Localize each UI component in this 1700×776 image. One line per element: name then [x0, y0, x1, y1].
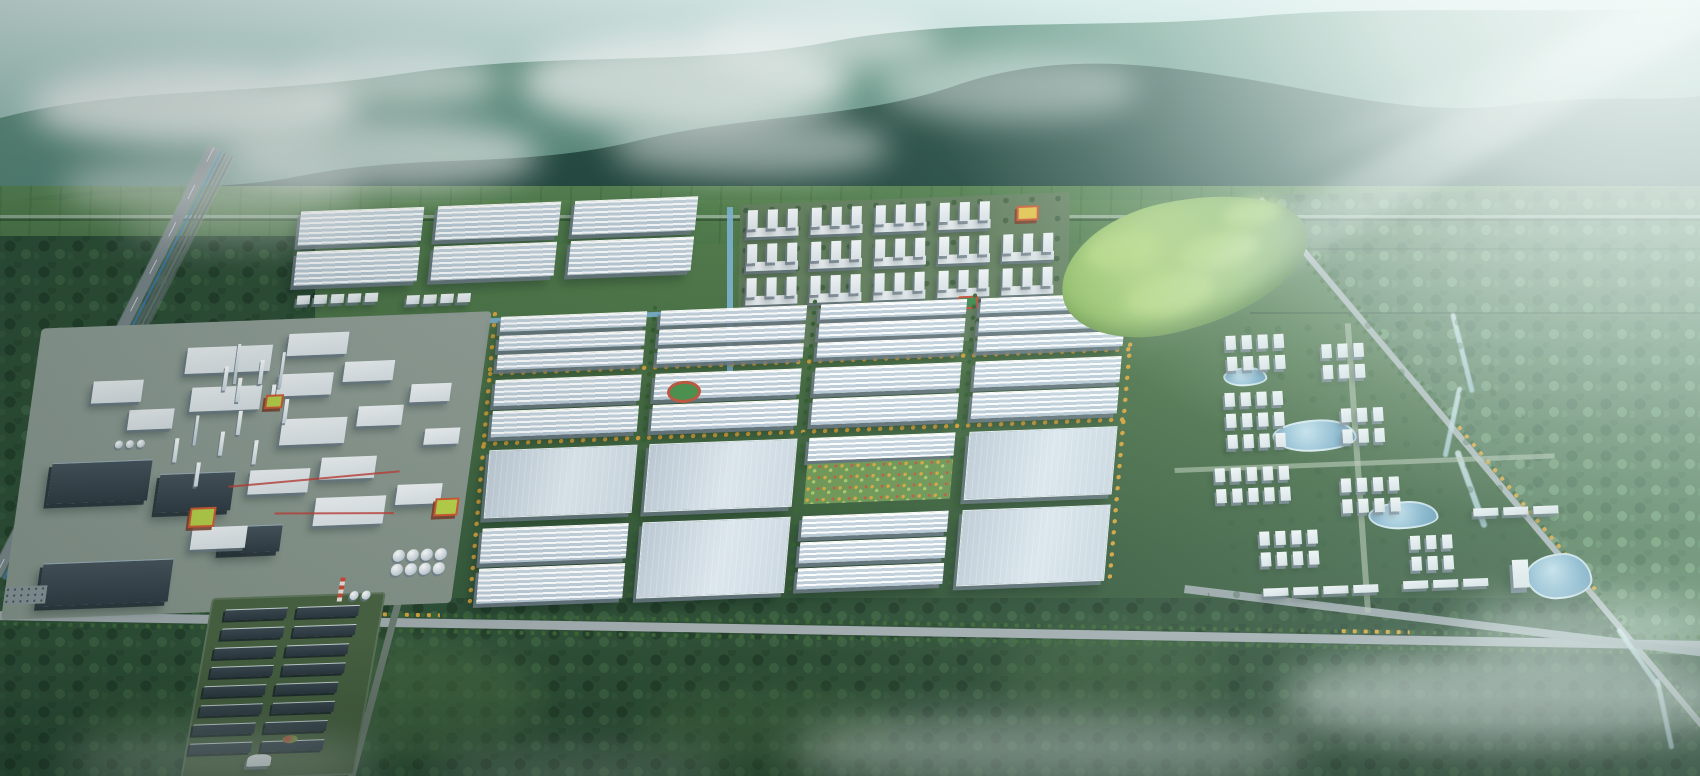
apartment-tower	[1241, 335, 1252, 349]
hedgerow-line	[1250, 312, 1700, 314]
storage-tank	[404, 563, 418, 576]
green-street	[946, 292, 979, 589]
dormitory-block	[746, 242, 798, 271]
central-garden	[804, 458, 953, 504]
small-workshop	[296, 295, 310, 305]
dormitory-wing	[787, 242, 797, 261]
dark-shed	[199, 703, 263, 716]
warehouse-hall	[811, 393, 959, 425]
pond	[1271, 418, 1357, 453]
dark-shed	[282, 662, 346, 675]
apartment-tower	[1279, 466, 1290, 480]
dark-roof-hall	[155, 471, 235, 513]
green-street	[626, 304, 659, 601]
sun-ray-small-icon	[1263, 0, 1700, 183]
mist-patch	[1460, 596, 1700, 660]
apartment-tower	[1411, 557, 1422, 571]
dormitory-wing	[1043, 233, 1053, 252]
warehouse-hall	[796, 563, 944, 590]
factory-hall	[572, 196, 699, 235]
dark-shed	[213, 646, 277, 659]
apartment-tower	[1342, 429, 1353, 443]
sky	[0, 0, 1700, 360]
dormitory-wing	[1002, 268, 1012, 287]
apartment-tower	[1243, 356, 1254, 370]
facility-grounds	[180, 592, 386, 776]
central-warehouse-grid	[18, 177, 1515, 654]
gingko-tree-row	[1340, 628, 1410, 636]
dormitory-block	[809, 274, 861, 303]
dormitory-slab	[1001, 285, 1053, 296]
apartment-tower	[1374, 428, 1385, 442]
apartment-tower	[1443, 555, 1454, 569]
apartment-tower	[1355, 364, 1366, 378]
white-process-building	[276, 372, 334, 396]
apartment-tower	[1242, 413, 1253, 427]
apartment-tower	[1291, 530, 1302, 544]
dormitory-wing	[766, 277, 776, 296]
tree-row	[1253, 200, 1700, 741]
rail-track	[6, 153, 226, 582]
orange-accent-building	[264, 394, 284, 409]
dormitory-wing	[940, 203, 950, 222]
white-tent-building	[246, 754, 272, 767]
forest-glade	[40, 420, 200, 550]
apartment-tower	[1293, 551, 1304, 565]
lowrise-slab	[1473, 508, 1499, 517]
apartment-tower	[1357, 478, 1368, 492]
dormitory-wing	[768, 209, 778, 228]
apartment-tower	[1226, 414, 1237, 428]
dormitory-wing	[850, 274, 860, 293]
factory-hall	[567, 236, 694, 275]
storage-tank	[432, 562, 446, 575]
northeast-avenue	[1254, 193, 1700, 740]
warehouse-hall	[971, 387, 1119, 419]
lowrise-slab	[1433, 579, 1459, 588]
apartment-tower	[1240, 392, 1251, 406]
lowrise-slab	[1263, 588, 1289, 597]
apartment-tower	[1216, 489, 1227, 503]
rolling-green-park	[1051, 175, 1320, 355]
dormitory-wing	[980, 201, 990, 220]
apartment-tower	[1339, 364, 1350, 378]
cloud-icon	[700, 10, 940, 70]
river-stream	[1655, 678, 1675, 749]
dormitory-wing	[914, 272, 924, 291]
green-roof	[266, 396, 281, 407]
apartment-tower	[1341, 408, 1352, 422]
southeast-road	[1184, 585, 1700, 658]
dormitory-wing	[916, 204, 926, 223]
dormitory-block	[1002, 233, 1054, 262]
dormitory-wing	[767, 243, 777, 262]
storage-tank	[434, 548, 448, 561]
hedgerow-line	[1250, 248, 1700, 250]
lowrise-slab	[1323, 585, 1349, 594]
dormitory-block	[746, 208, 798, 237]
storage-tank	[136, 440, 145, 448]
white-process-building	[319, 456, 377, 480]
office-tower	[1512, 559, 1530, 588]
dormitory-block	[938, 201, 990, 230]
color-grade-vignette	[0, 0, 1700, 776]
apartment-tower	[1307, 530, 1318, 544]
process-tower	[258, 360, 265, 384]
apartment-tower	[1275, 531, 1286, 545]
dormitory-slab	[873, 290, 925, 301]
dormitory-block	[810, 240, 862, 269]
northwest-factory-zone	[11, 177, 1515, 655]
foothill-band	[0, 208, 1700, 360]
dormitory-wing	[786, 277, 796, 296]
process-tower	[236, 411, 243, 435]
dormitory-wing	[959, 236, 969, 255]
lowrise-slab	[1293, 586, 1319, 595]
lowrise-slab	[1463, 578, 1489, 587]
orange-accent-building	[433, 497, 460, 516]
cloud-icon	[30, 64, 360, 148]
dark-shed	[296, 605, 360, 618]
river-stream	[1443, 386, 1463, 457]
storage-tank	[361, 590, 372, 599]
warehouse-hall	[658, 324, 805, 345]
dormitory-wing	[811, 242, 821, 261]
apartment-tower	[1247, 467, 1258, 481]
cloud-icon	[220, 118, 540, 192]
south-boulevard	[0, 604, 1700, 656]
grass-mound	[1176, 224, 1261, 276]
apartment-tower	[1264, 487, 1275, 501]
dormitory-block	[810, 206, 862, 235]
big-flat-warehouse	[484, 445, 638, 519]
river-stream	[1616, 627, 1661, 689]
dormitory-wing	[874, 273, 884, 292]
apartment-tower	[1337, 343, 1348, 357]
apartment-tower	[1257, 334, 1268, 348]
white-process-building	[356, 405, 404, 427]
forest-glade	[240, 640, 540, 760]
dormitory-wing	[1042, 267, 1052, 286]
rail-track	[14, 156, 234, 585]
dormitory-wing	[810, 276, 820, 295]
red-pipeline	[274, 512, 394, 514]
dormitory-wing	[1003, 234, 1013, 253]
dormitory-block	[1001, 267, 1053, 296]
process-tower	[269, 384, 276, 408]
basketball-court	[958, 296, 978, 310]
apartment-tower	[1273, 334, 1284, 348]
apartment-tower	[1261, 552, 1272, 566]
dormitory-slab	[809, 292, 861, 303]
facility-access-road	[343, 600, 402, 776]
apartment-tower	[1309, 550, 1320, 564]
forest-east	[1256, 186, 1700, 654]
rail-track	[10, 154, 230, 583]
avenue-asphalt	[1258, 197, 1700, 737]
small-workshop	[364, 293, 378, 303]
storage-tank	[418, 563, 432, 576]
warehouse-hall	[660, 305, 807, 326]
factory-hall	[435, 202, 562, 241]
storage-tank	[349, 591, 360, 600]
warehouse-hall	[500, 311, 647, 332]
apartment-tower	[1258, 412, 1269, 426]
warehouse-hall	[977, 331, 1124, 352]
pond	[1367, 500, 1439, 531]
apartment-tower	[1353, 343, 1364, 357]
tree-row	[1262, 193, 1700, 734]
apartment-tower	[1321, 344, 1332, 358]
dormitory-slab	[937, 287, 989, 298]
gingko-street	[1106, 285, 1139, 582]
dark-shed	[188, 742, 252, 755]
pond	[1524, 552, 1593, 600]
small-workshop	[440, 294, 454, 304]
big-flat-warehouse	[636, 517, 791, 599]
small-workshop	[423, 294, 437, 304]
dormitory-wing	[746, 278, 756, 297]
apartment-tower	[1275, 355, 1286, 369]
apartment-tower	[1323, 365, 1334, 379]
dormitory-wing	[851, 240, 861, 259]
dark-roof-hall	[47, 459, 153, 504]
apartment-tower	[1342, 499, 1353, 513]
white-process-building	[184, 345, 273, 374]
gingko-avenue	[480, 416, 1131, 448]
dormitory-block	[937, 269, 989, 298]
storage-tank	[390, 564, 404, 577]
small-workshop	[457, 293, 471, 303]
dark-shed	[260, 739, 324, 752]
valley-floor	[0, 200, 1700, 776]
apartment-tower	[1373, 477, 1384, 491]
dormitory-wing	[979, 235, 989, 254]
apartment-tower	[1231, 467, 1242, 481]
dark-shed	[221, 626, 285, 639]
warehouse-hall	[817, 337, 964, 358]
dormitory-block	[745, 276, 797, 305]
storage-tank	[114, 440, 123, 448]
orange-accent-building	[1017, 205, 1039, 221]
chimney-stack	[192, 415, 199, 445]
warehouse-hall	[657, 343, 804, 364]
apartment-tower	[1259, 531, 1270, 545]
apartment-tower	[1341, 478, 1352, 492]
small-workshop	[313, 295, 327, 305]
lit-hills	[0, 192, 560, 360]
apartment-tower	[1274, 412, 1285, 426]
chimney-stack	[233, 344, 242, 384]
warehouse-hall	[493, 374, 641, 406]
apartment-tower	[1227, 357, 1238, 371]
far-ridge	[0, 6, 1700, 360]
cloud-icon	[60, 158, 360, 214]
warehouse-hall	[801, 511, 949, 538]
dormitory-block	[873, 272, 925, 301]
gingko-avenue	[486, 345, 1137, 377]
dormitory-wing	[832, 207, 842, 226]
dormitory-block	[938, 235, 990, 264]
chimney-stack	[278, 352, 286, 388]
white-process-building	[423, 427, 460, 444]
dormitory-wing	[831, 241, 841, 260]
white-process-building	[286, 332, 349, 356]
dormitory-wing	[852, 206, 862, 225]
park-path	[1174, 453, 1554, 473]
forest-glade	[640, 690, 900, 770]
warehouse-hall	[973, 356, 1121, 388]
foothill-road	[0, 215, 1700, 218]
warehouse-hall	[491, 406, 639, 438]
warehouse-hall	[480, 523, 629, 564]
apartment-tower	[1358, 499, 1369, 513]
warehouse-hall	[653, 368, 801, 400]
dormitory-wing	[812, 208, 822, 227]
warehouse-hall	[498, 330, 645, 351]
big-flat-warehouse	[964, 426, 1118, 500]
dark-shed	[271, 701, 335, 714]
apartment-tower	[1410, 536, 1421, 550]
lane-markings	[0, 147, 215, 575]
farm-fields	[0, 186, 1700, 244]
warehouse-hall	[980, 293, 1127, 314]
dormitory-wing	[747, 244, 757, 263]
warehouse-hall	[813, 362, 961, 394]
canal-vertical	[727, 207, 733, 372]
cloud-icon	[880, 52, 1140, 122]
dormitory-slab	[746, 260, 798, 271]
storage-tank	[125, 440, 134, 448]
apartment-tower	[1390, 497, 1401, 511]
industrial-park	[55, 177, 1515, 653]
haze-right	[0, 0, 1700, 776]
warehouse-hall	[497, 349, 644, 370]
dark-roof-hall	[38, 558, 174, 606]
cloud-icon	[610, 116, 890, 178]
dormitory-block	[874, 238, 926, 267]
apartment-tower	[1442, 534, 1453, 548]
dormitory-wing	[939, 237, 949, 256]
white-process-building	[279, 417, 348, 446]
white-process-building	[190, 526, 248, 550]
dormitory-slab	[746, 226, 798, 237]
dormitory-slab	[874, 256, 926, 267]
dark-shed	[210, 665, 274, 678]
grass-mound	[1122, 264, 1218, 322]
forest-glade	[80, 700, 280, 760]
forest-south	[0, 598, 1700, 776]
storage-tank	[406, 549, 420, 562]
apartment-tower	[1227, 435, 1238, 449]
dark-shed	[203, 684, 267, 697]
apartment-tower	[1373, 407, 1384, 421]
mist-patch	[1280, 652, 1700, 746]
cloud-icon	[520, 34, 850, 130]
pond	[1223, 366, 1268, 387]
dormitory-wing	[938, 271, 948, 290]
process-tower	[172, 438, 179, 462]
small-workshop	[330, 294, 344, 304]
dormitory-wing	[895, 238, 905, 257]
warehouse-hall	[818, 318, 965, 339]
flower-garden	[282, 735, 298, 744]
dark-shed	[275, 682, 339, 695]
apartment-tower	[1225, 336, 1236, 350]
apartment-tower	[1358, 429, 1369, 443]
process-tower	[282, 399, 289, 423]
apartment-tower	[1374, 498, 1385, 512]
canal-horizontal	[290, 309, 730, 331]
apartment-tower	[1259, 433, 1270, 447]
dormitory-block	[874, 204, 926, 233]
dormitory-wing	[978, 269, 988, 288]
warehouse-hall	[820, 299, 967, 320]
apartment-tower	[1256, 391, 1267, 405]
dormitory-wing	[958, 270, 968, 289]
dormitory-wing	[1023, 233, 1033, 252]
parking-lot	[3, 585, 48, 605]
process-tower	[235, 378, 242, 402]
lowrise-slab	[1353, 584, 1379, 593]
apartment-tower	[1259, 355, 1270, 369]
dormitory-wing	[915, 238, 925, 257]
factory-hall	[293, 247, 420, 286]
apartment-tower	[1263, 466, 1274, 480]
apartment-tower	[1275, 433, 1286, 447]
warehouse-hall	[651, 399, 799, 431]
apartment-tower	[1224, 393, 1235, 407]
dormitory-wing	[876, 205, 886, 224]
park-path	[1345, 323, 1371, 612]
gingko-tree-row	[1454, 423, 1601, 596]
dormitory-slab	[745, 294, 797, 305]
boulevard-asphalt	[0, 611, 1700, 650]
mountain-backdrop	[0, 0, 1700, 360]
striped-chimney	[337, 577, 346, 601]
white-process-building	[247, 468, 310, 494]
warehouse-hall	[476, 563, 625, 604]
apartment-tower	[1277, 552, 1288, 566]
white-process-building	[343, 360, 396, 382]
dormitory-slab	[810, 258, 862, 269]
mist-patch	[60, 736, 380, 776]
small-workshop	[347, 293, 361, 303]
rail-highway-corridor	[0, 144, 235, 585]
main-ridge	[0, 64, 1700, 360]
grass-mound	[1084, 226, 1159, 274]
warehouse-hall	[799, 537, 947, 564]
red-pipeline	[228, 470, 399, 487]
cloud-icon	[290, 52, 500, 108]
chemical-plant-zone	[0, 177, 1515, 655]
lowrise-slab	[1503, 506, 1529, 515]
running-track-field	[667, 380, 701, 403]
process-tower	[218, 431, 225, 455]
industrial-park-aerial-render	[0, 0, 1700, 776]
mist-patch	[790, 716, 1310, 776]
sun-glare	[0, 0, 1700, 776]
river-stream	[1450, 313, 1475, 394]
dormitory-slab	[874, 222, 926, 233]
river-stream	[1454, 449, 1488, 528]
dormitory-slab	[938, 219, 990, 230]
mist-patch	[430, 750, 730, 776]
dormitory-wing	[830, 275, 840, 294]
dark-shed	[264, 720, 328, 733]
green-roof	[190, 509, 214, 526]
big-flat-warehouse	[644, 438, 798, 512]
